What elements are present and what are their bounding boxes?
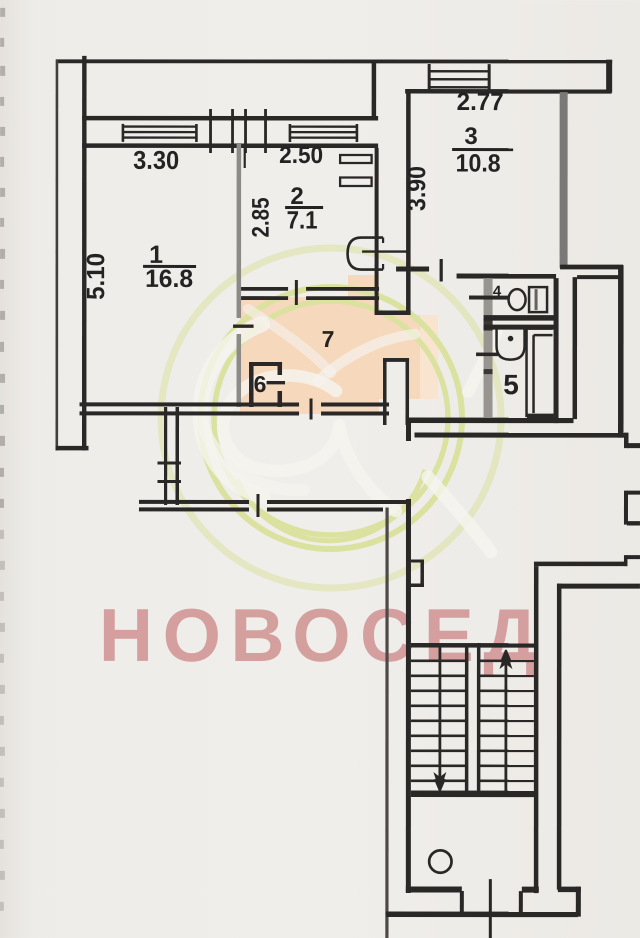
svg-text:2.85: 2.85 — [248, 197, 275, 237]
svg-text:5.10: 5.10 — [82, 253, 110, 300]
svg-text:3.30: 3.30 — [133, 145, 179, 175]
svg-text:4: 4 — [493, 283, 502, 300]
svg-text:3: 3 — [464, 123, 477, 150]
svg-text:2.50: 2.50 — [279, 142, 323, 169]
svg-text:7.1: 7.1 — [287, 206, 318, 234]
svg-text:5: 5 — [503, 369, 519, 400]
svg-text:7: 7 — [322, 326, 335, 352]
svg-text:10.8: 10.8 — [456, 150, 501, 178]
svg-text:2.77: 2.77 — [457, 88, 504, 116]
svg-text:6: 6 — [254, 371, 267, 397]
svg-text:3.90: 3.90 — [403, 166, 431, 211]
svg-text:16.8: 16.8 — [145, 265, 193, 293]
